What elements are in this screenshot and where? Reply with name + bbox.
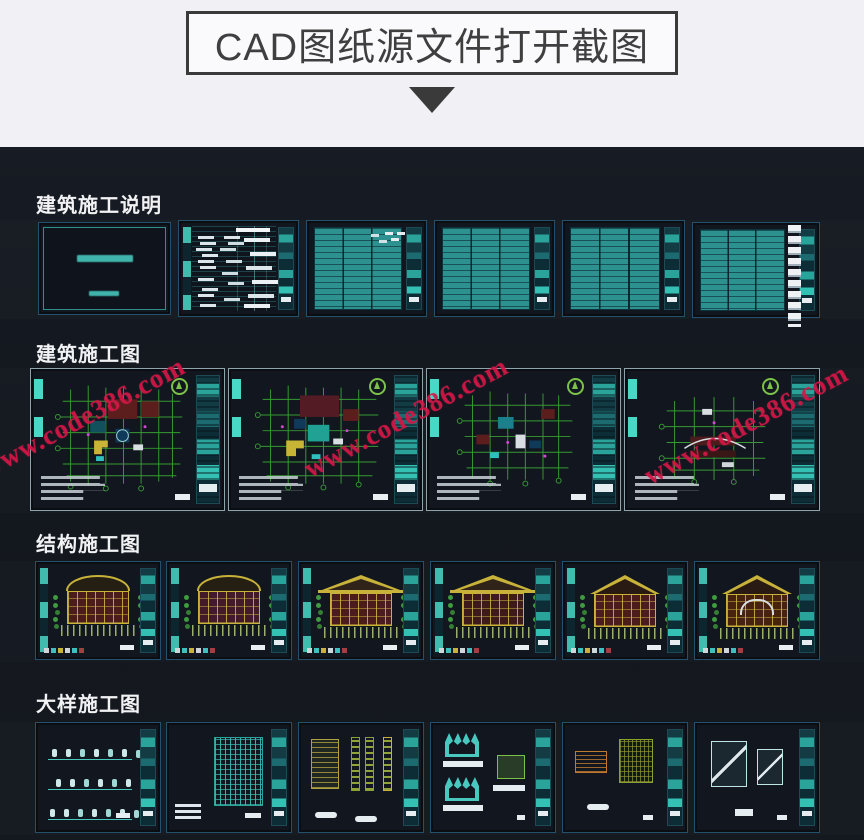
header-band: CAD图纸源文件打开截图: [0, 0, 864, 147]
label-bar: [355, 816, 377, 822]
scale-tag: [777, 815, 787, 820]
wall-elevation: [462, 593, 524, 626]
sheet-edge-strip: [567, 568, 575, 653]
title-block-strip: [799, 229, 815, 311]
elevation-thumbnail: [166, 561, 292, 660]
green-detail-glyph: [497, 755, 525, 779]
scale-tag: [515, 645, 529, 650]
beam-detail: [311, 739, 339, 789]
title-block-strip: [592, 375, 616, 504]
cornice-detail-glyph: [445, 733, 479, 757]
notes-text-blob: [175, 804, 201, 822]
spec-sheet-thumbnail: [692, 222, 820, 318]
frame-corner-block: [34, 379, 43, 399]
wall-elevation: [198, 591, 260, 624]
column-detail-glyphs: [56, 779, 61, 787]
planting-symbols: [712, 595, 717, 600]
row-detail-sheets: [0, 722, 864, 835]
section-label-structural: 结构施工图: [36, 528, 141, 557]
title-block-strip: [403, 568, 419, 653]
planting-symbols: [448, 595, 453, 600]
title-block-strip: [535, 729, 551, 826]
column-bar-detail: [383, 737, 392, 791]
cornice-detail-glyph: [445, 777, 479, 801]
title-block-strip: [667, 729, 683, 826]
column-detail-glyphs: [52, 749, 57, 757]
scale-tag: [383, 645, 397, 650]
planting-symbols: [580, 595, 585, 600]
frame-corner-block: [232, 379, 241, 399]
sheet-edge-strip: [435, 568, 443, 653]
north-arrow-icon: [369, 378, 386, 395]
column-detail-glyphs: [50, 809, 55, 817]
sheet-edge-strip: [183, 227, 191, 310]
label-bar: [443, 761, 483, 767]
stair-section-glyph: [757, 749, 783, 785]
frame-corner-block: [232, 417, 241, 437]
spec-text-area: [442, 227, 530, 310]
sheet-edge-strip: [40, 568, 48, 653]
scale-tag: [571, 494, 586, 500]
index-header-bar: [236, 228, 270, 232]
spec-text-area: [700, 229, 785, 311]
roof-outline: [66, 575, 130, 591]
sheet-frame: [43, 227, 166, 310]
page-root: CAD图纸源文件打开截图 建筑施工说明: [0, 0, 864, 840]
wall-elevation: [330, 593, 392, 626]
section-drawing-thumbnail: [562, 561, 688, 660]
column-bar-detail: [365, 737, 374, 791]
scale-tag: [251, 645, 265, 650]
row-structural-elevations: [0, 561, 864, 662]
legend-chips: [44, 648, 49, 653]
scale-tag: [779, 645, 793, 650]
spec-text-area: [314, 227, 402, 310]
scale-tag: [116, 813, 130, 818]
legend-chips: [439, 648, 444, 653]
roof-outline: [722, 575, 792, 594]
wall-node-detail: [619, 739, 653, 783]
column-detail-thumbnail: [298, 722, 424, 833]
drawing-index-thumbnail: [178, 220, 299, 317]
title-block-strip: [271, 729, 287, 826]
eave-node-detail: [575, 751, 607, 773]
frame-corner-block: [628, 417, 637, 437]
title-block-strip: [140, 568, 156, 653]
cad-preview-panel: 建筑施工说明: [0, 147, 864, 840]
sheet-number-bits: [385, 232, 393, 235]
white-notes-column: [788, 225, 801, 327]
section-drawing-thumbnail: [430, 561, 556, 660]
roof-outline: [454, 575, 532, 590]
title-block-strip: [535, 568, 551, 653]
spec-sheet-thumbnail: [306, 220, 427, 317]
section-label-details: 大样施工图: [36, 688, 141, 717]
sheet-edge-strip: [699, 568, 707, 653]
north-arrow-icon: [567, 378, 584, 395]
page-title: CAD图纸源文件打开截图: [215, 16, 649, 71]
node-detail-thumbnail: [562, 722, 688, 833]
foundation-hatch: [61, 625, 135, 636]
title-block-strip: [271, 568, 287, 653]
title-block-strip: [278, 227, 294, 310]
stair-detail-thumbnail: [694, 722, 820, 833]
elevation-drawing: [316, 575, 406, 638]
title-block-strip: [196, 375, 220, 504]
scale-tag: [643, 815, 653, 820]
title-block-strip: [667, 568, 683, 653]
title-block-strip: [403, 729, 419, 826]
spec-text-area: [570, 227, 660, 310]
title-block-strip: [799, 568, 815, 653]
schedule-table-thumbnail: [166, 722, 292, 833]
elevation-drawing: [448, 575, 538, 638]
elevation-thumbnail: [35, 561, 161, 660]
legend-chips: [571, 648, 576, 653]
detail-sheet-thumbnail: [35, 722, 161, 833]
rebar-schedule-grid: [214, 737, 263, 806]
section-label-architectural: 建筑施工图: [36, 338, 141, 367]
scale-tag: [373, 494, 388, 500]
elevation-drawing: [53, 575, 143, 636]
section-label-notes: 建筑施工说明: [36, 189, 162, 218]
scale-tag: [245, 813, 261, 818]
roof-outline: [322, 575, 400, 590]
elevation-drawing: [580, 575, 670, 639]
scale-tag: [517, 815, 525, 820]
frame-corner-block: [628, 379, 637, 399]
index-row-bars: [198, 236, 214, 239]
scale-tag: [175, 494, 190, 500]
stair-section-glyph: [711, 741, 747, 787]
title-block-strip: [664, 227, 680, 310]
index-table: [192, 226, 276, 311]
spec-sheet-thumbnail: [434, 220, 555, 317]
column-bar-detail: [351, 737, 360, 791]
planting-symbols: [53, 595, 58, 600]
parapet-detail-thumbnail: [430, 722, 556, 833]
legend-chips: [307, 648, 312, 653]
spec-sheet-thumbnail: [562, 220, 685, 317]
foundation-hatch: [588, 628, 662, 639]
elevation-drawing: [712, 575, 802, 639]
foundation-hatch: [456, 627, 530, 638]
label-bar: [443, 805, 483, 811]
title-block-strip: [799, 729, 815, 826]
title-block-strip: [406, 227, 422, 310]
legend-chips: [703, 648, 708, 653]
section-drawing-thumbnail: [298, 561, 424, 660]
title-block-strip: [534, 227, 550, 310]
foundation-hatch: [324, 627, 398, 638]
label-bar: [735, 809, 753, 816]
cover-title-text-blob: [77, 255, 133, 262]
scale-tag: [647, 645, 661, 650]
foundation-hatch: [720, 628, 794, 639]
wall-elevation: [594, 594, 656, 627]
roof-outline: [197, 575, 261, 591]
legend-chips: [175, 648, 180, 653]
cover-subtitle-text-blob: [89, 291, 119, 296]
cover-sheet-thumbnail: [38, 222, 171, 315]
sheet-edge-strip: [171, 568, 179, 653]
section-drawing-thumbnail: [694, 561, 820, 660]
roof-outline: [590, 575, 660, 594]
foundation-hatch: [192, 625, 266, 636]
elevation-drawing: [184, 575, 274, 636]
down-arrow-icon: [409, 87, 455, 113]
row-construction-notes: [0, 220, 864, 319]
label-bar: [315, 812, 337, 818]
label-bar: [493, 785, 525, 791]
planting-symbols: [184, 595, 189, 600]
wall-elevation: [67, 591, 129, 624]
sheet-edge-strip: [303, 568, 311, 653]
planting-symbols: [316, 595, 321, 600]
scale-tag: [120, 645, 134, 650]
promo-title-box: CAD图纸源文件打开截图: [186, 11, 678, 75]
label-bar: [587, 804, 609, 810]
title-block-strip: [140, 729, 156, 826]
scale-tag: [770, 494, 785, 500]
index-row-bars: [244, 238, 270, 242]
